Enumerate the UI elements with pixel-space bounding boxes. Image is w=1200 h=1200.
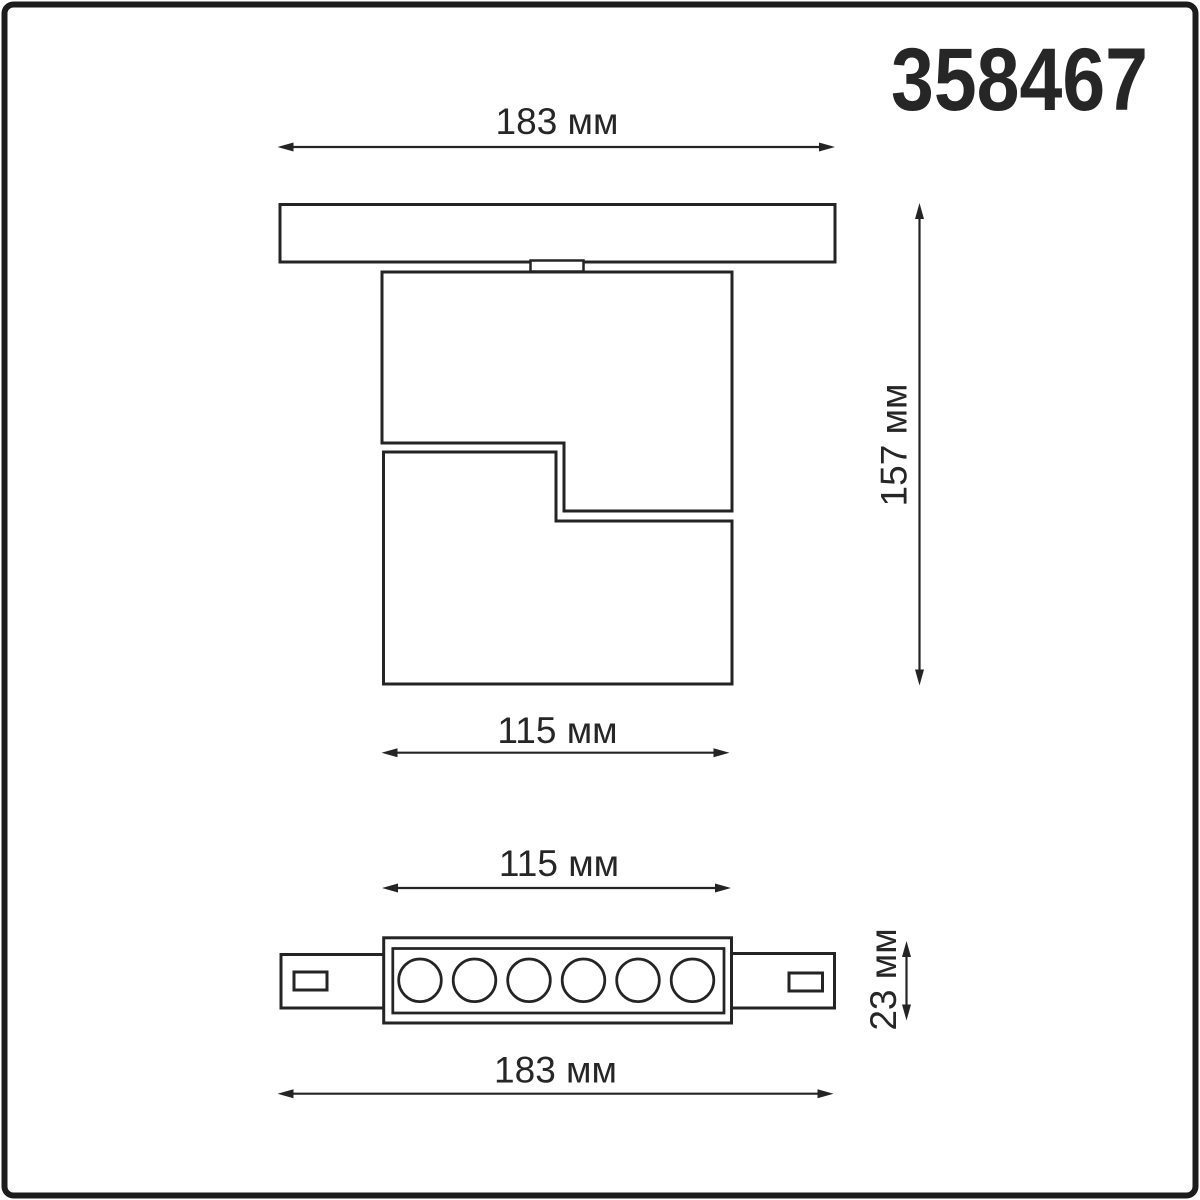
svg-text:115 мм: 115 мм: [497, 710, 617, 751]
svg-text:358467: 358467: [891, 29, 1148, 129]
svg-text:157 мм: 157 мм: [874, 384, 915, 507]
svg-text:183 мм: 183 мм: [496, 101, 619, 142]
svg-text:23 мм: 23 мм: [863, 928, 904, 1030]
svg-text:115 мм: 115 мм: [499, 843, 619, 884]
svg-text:183 мм: 183 мм: [494, 1050, 617, 1091]
